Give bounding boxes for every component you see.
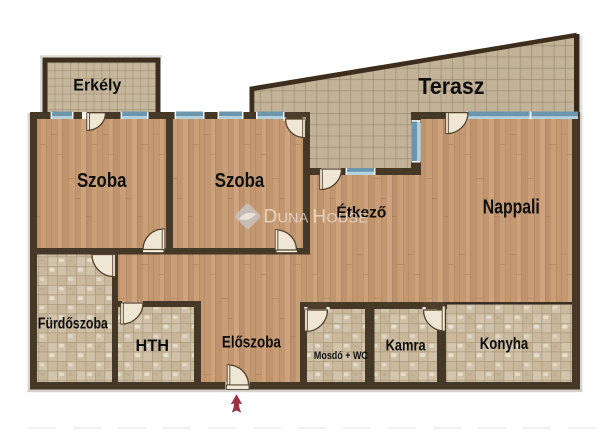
svg-text:Nappali: Nappali <box>483 197 540 219</box>
svg-text:Kamra: Kamra <box>386 338 426 355</box>
svg-text:Mosdó + WC: Mosdó + WC <box>314 350 368 362</box>
svg-text:Előszoba: Előszoba <box>222 334 282 352</box>
svg-text:Erkély: Erkély <box>73 75 122 94</box>
svg-text:Szoba: Szoba <box>77 170 127 192</box>
svg-text:DUNA HOUSE: DUNA HOUSE <box>264 207 369 228</box>
svg-text:Fürdőszoba: Fürdőszoba <box>38 315 108 332</box>
svg-text:Konyha: Konyha <box>480 334 529 353</box>
svg-text:Szoba: Szoba <box>215 170 265 192</box>
svg-text:HTH: HTH <box>136 336 170 355</box>
svg-text:Terasz: Terasz <box>418 73 484 99</box>
